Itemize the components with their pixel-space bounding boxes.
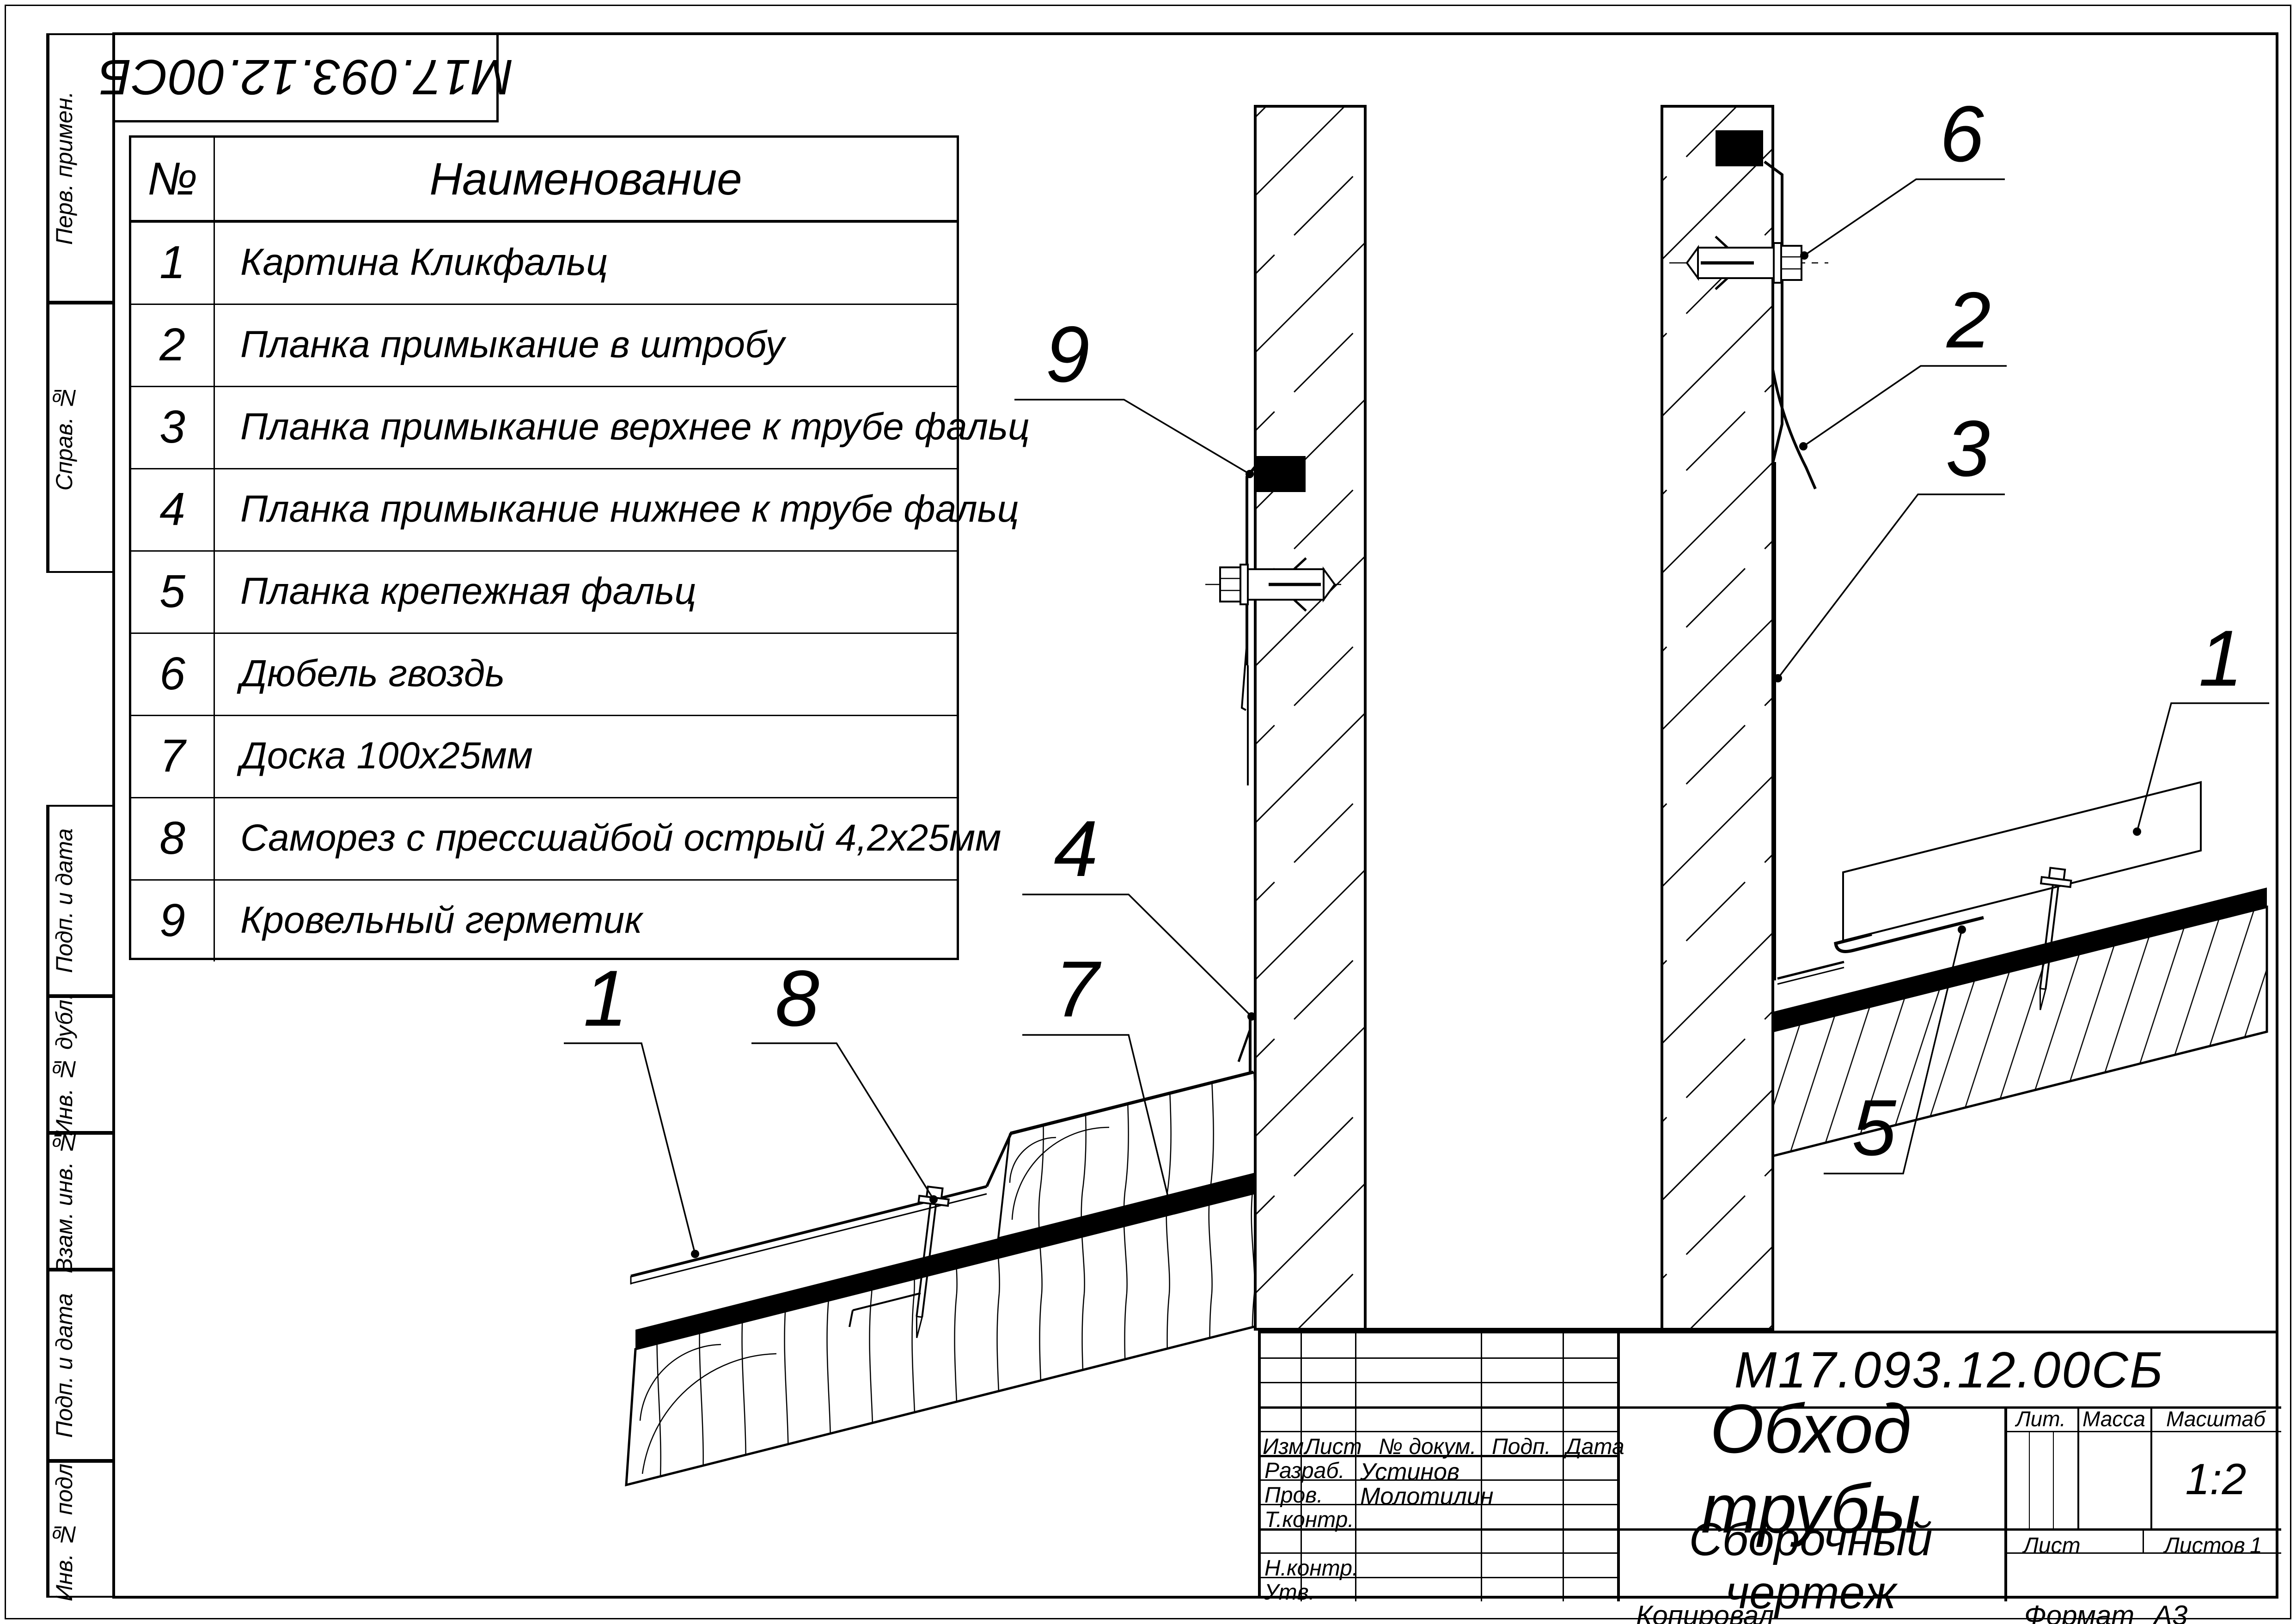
tb-title: Обход трубы: [1617, 1409, 2004, 1528]
tb-label-prov: Пров.: [1264, 1483, 1323, 1508]
tb-label-masshtab: Масштаб: [2150, 1406, 2281, 1431]
tb-label-listov: Листов: [2164, 1533, 2245, 1558]
footer-copied: Копировал: [1636, 1600, 1774, 1624]
part-num: 2: [131, 304, 215, 386]
callout-9: 9: [1031, 310, 1105, 398]
callout-2: 2: [1932, 276, 2006, 364]
table-row: 4 Планка примыкание нижнее к трубе фальц: [131, 468, 957, 552]
table-row: 8 Саморез с прессшайбой острый 4,2х25мм: [131, 797, 957, 881]
table-row: 6 Дюбель гвоздь: [131, 633, 957, 716]
part-name: Планка примыкание нижнее к трубе фальц: [215, 468, 957, 550]
margin-box-vzam-inv: Взам. инв. №: [46, 1133, 112, 1270]
tb-label-nkontr: Н.контр.: [1264, 1556, 1358, 1581]
margin-label: Инв. № подл.: [48, 1463, 79, 1596]
parts-table: № Наименование 1 Картина Кликфальц 2 Пла…: [129, 135, 959, 960]
margin-label: Подп. и дата: [48, 1271, 79, 1459]
margin-label: Взам. инв. №: [48, 1135, 79, 1268]
tb-label-podp: Подп.: [1492, 1434, 1551, 1460]
callout-8: 8: [760, 955, 834, 1042]
tb-value-listov: 1: [2250, 1533, 2262, 1558]
table-row: 3 Планка примыкание верхнее к трубе фаль…: [131, 386, 957, 469]
part-num: 5: [131, 550, 215, 633]
part-num: 9: [131, 879, 215, 961]
part-name: Планка крепежная фальц: [215, 550, 957, 633]
margin-box-podp-data-2: Подп. и дата: [46, 1270, 112, 1461]
margin-box-inv-podl: Инв. № подл.: [46, 1461, 112, 1598]
margin-label: Инв. № дубл.: [48, 998, 79, 1131]
callout-5: 5: [1837, 1084, 1911, 1172]
margin-label: Справ. №: [48, 304, 79, 571]
callout-4: 4: [1039, 805, 1113, 893]
tb-label-lit: Лит.: [2004, 1406, 2077, 1431]
parts-header-num: №: [131, 138, 215, 220]
part-name: Картина Кликфальц: [215, 221, 957, 304]
table-row: 9 Кровельный герметик: [131, 879, 957, 961]
part-num: 1: [131, 221, 215, 304]
table-row: 1 Картина Кликфальц: [131, 221, 957, 305]
margin-label: Подп. и дата: [48, 807, 79, 994]
part-name: Доска 100х25мм: [215, 715, 957, 797]
part-name: Планка примыкание в штробу: [215, 304, 957, 386]
callout-6: 6: [1925, 90, 1999, 178]
callout-3: 3: [1931, 405, 2005, 493]
parts-header-name: Наименование: [215, 138, 957, 220]
callout-1-left: 1: [568, 955, 642, 1042]
callout-7: 7: [1040, 945, 1114, 1033]
table-row: 2 Планка примыкание в штробу: [131, 304, 957, 387]
margin-box-sprav: Справ. №: [46, 303, 112, 573]
tb-label-ndokum: № докум.: [1379, 1434, 1476, 1460]
drawing-sheet: Перв. примен. Справ. № Подп. и дата Инв.…: [0, 0, 2296, 1624]
part-name: Планка примыкание верхнее к трубе фальц: [215, 386, 957, 468]
reversed-designation-text: М17.093.12.00СБ: [115, 35, 496, 120]
reversed-designation-box: М17.093.12.00СБ: [112, 32, 499, 122]
part-num: 7: [131, 715, 215, 797]
footer-format-value: А3: [2154, 1600, 2187, 1624]
tb-value-scale: 1:2: [2150, 1431, 2281, 1528]
tb-label-izm: Изм.: [1263, 1434, 1310, 1460]
tb-label-data: Дата: [1566, 1434, 1624, 1460]
part-num: 8: [131, 797, 215, 879]
title-block: Изм. Лист № докум. Подп. Дата Разраб. Ус…: [1258, 1331, 2278, 1599]
parts-header-row: № Наименование: [131, 138, 957, 223]
part-num: 6: [131, 633, 215, 715]
margin-box-podp-data-1: Подп. и дата: [46, 805, 112, 996]
table-row: 7 Доска 100х25мм: [131, 715, 957, 798]
part-num: 3: [131, 386, 215, 468]
tb-label-massa: Масса: [2077, 1406, 2150, 1431]
part-name: Саморез с прессшайбой острый 4,2х25мм: [215, 797, 957, 879]
part-name: Кровельный герметик: [215, 879, 957, 961]
tb-label-utv: Утв.: [1264, 1580, 1315, 1605]
margin-label: Перв. примен.: [48, 35, 79, 301]
callout-1-right: 1: [2184, 614, 2258, 702]
tb-doc-type: Сборочный чертеж: [1617, 1531, 2004, 1601]
tb-label-list2: Лист: [2023, 1533, 2081, 1558]
margin-box-inv-dubl: Инв. № дубл.: [46, 996, 112, 1133]
table-row: 5 Планка крепежная фальц: [131, 550, 957, 634]
footer-format-label: Формат: [2024, 1600, 2134, 1624]
tb-label-razrab: Разраб.: [1264, 1458, 1345, 1484]
tb-label-list: Лист: [1305, 1434, 1362, 1460]
tb-label-tkontr: Т.контр.: [1264, 1507, 1354, 1533]
part-num: 4: [131, 468, 215, 550]
tb-value-razrab: Устинов: [1360, 1458, 1459, 1486]
tb-value-prov: Молотилин: [1360, 1483, 1493, 1510]
part-name: Дюбель гвоздь: [215, 633, 957, 715]
